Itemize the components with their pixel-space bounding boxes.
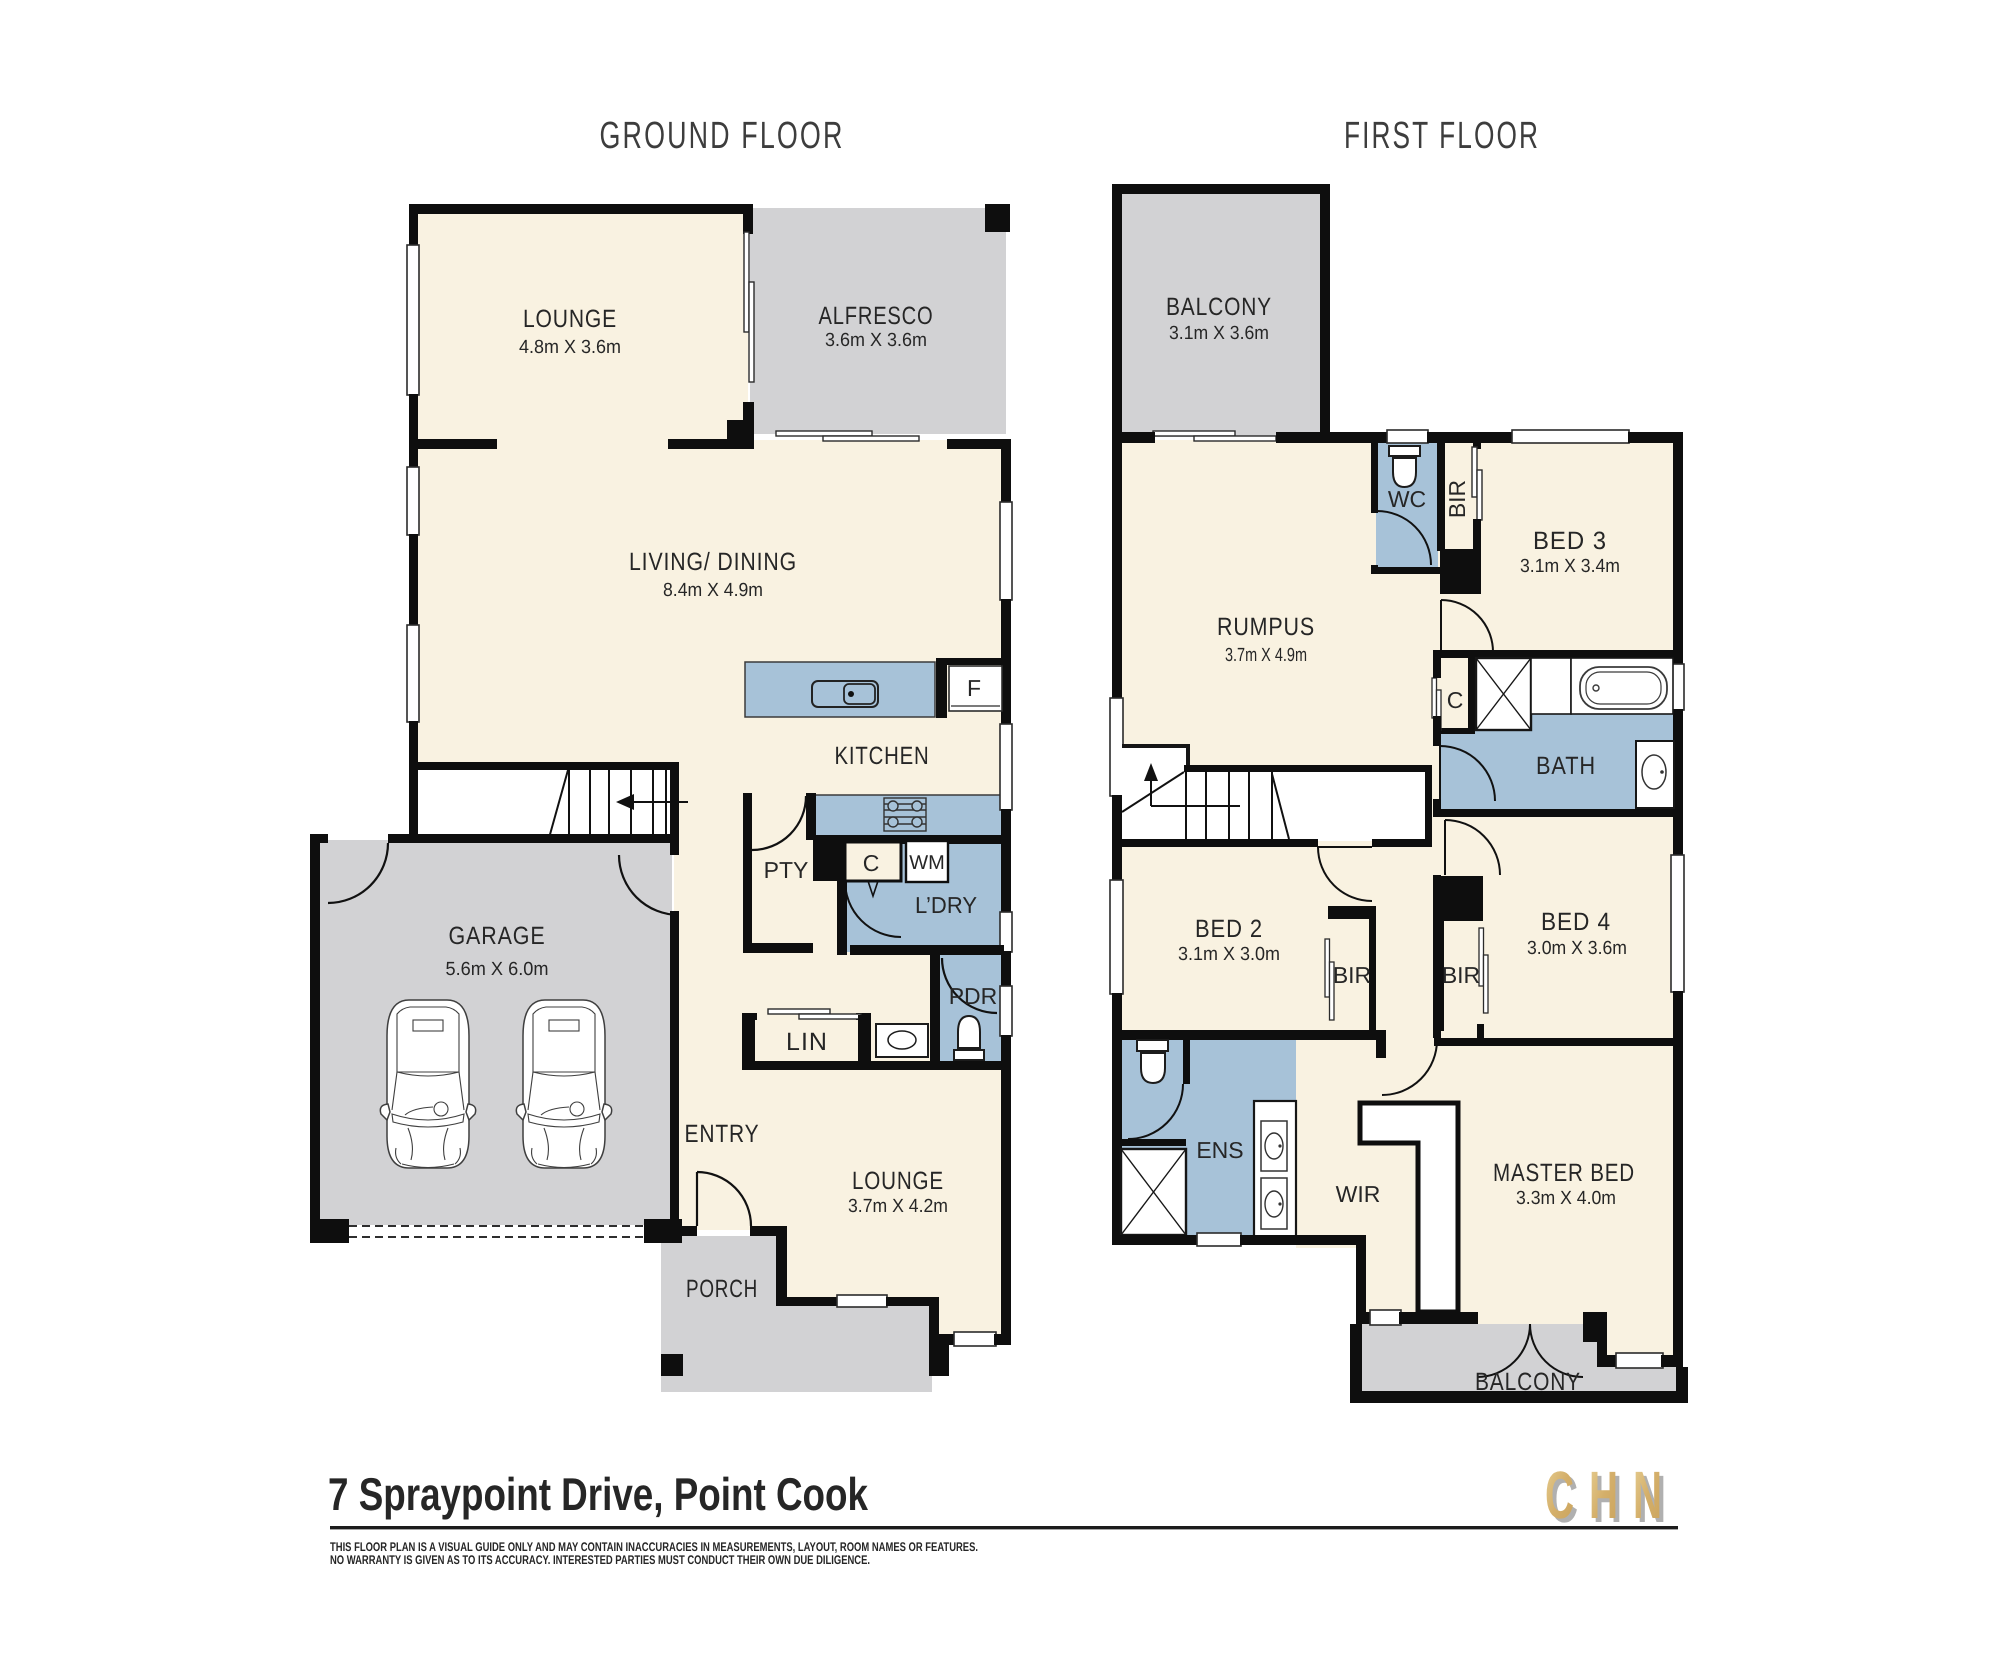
svg-text:3.7m X 4.2m: 3.7m X 4.2m xyxy=(848,1196,948,1217)
svg-text:ALFRESCO: ALFRESCO xyxy=(819,302,934,330)
svg-text:C: C xyxy=(1545,1458,1574,1533)
svg-text:LIN: LIN xyxy=(786,1028,828,1056)
svg-text:PORCH: PORCH xyxy=(686,1275,758,1303)
svg-text:WIR: WIR xyxy=(1336,1181,1381,1207)
svg-text:BALCONY: BALCONY xyxy=(1166,293,1272,321)
svg-text:4.8m X 3.6m: 4.8m X 3.6m xyxy=(519,337,621,358)
svg-text:ENS: ENS xyxy=(1196,1137,1243,1163)
svg-text:C: C xyxy=(863,850,880,876)
svg-text:BIR: BIR xyxy=(1333,962,1371,988)
svg-text:3.6m X 3.6m: 3.6m X 3.6m xyxy=(825,330,927,351)
svg-text:BIR: BIR xyxy=(1444,480,1470,518)
svg-text:3.1m X 3.6m: 3.1m X 3.6m xyxy=(1169,323,1269,344)
svg-text:LOUNGE: LOUNGE xyxy=(852,1167,944,1195)
svg-text:RUMPUS: RUMPUS xyxy=(1217,613,1315,641)
svg-text:3.0m X 3.6m: 3.0m X 3.6m xyxy=(1527,938,1627,959)
svg-text:MASTER BED: MASTER BED xyxy=(1493,1159,1635,1187)
svg-text:LOUNGE: LOUNGE xyxy=(523,305,617,333)
svg-text:BED 3: BED 3 xyxy=(1533,527,1607,555)
svg-text:5.6m X 6.0m: 5.6m X 6.0m xyxy=(446,959,549,980)
svg-text:8.4m X 4.9m: 8.4m X 4.9m xyxy=(663,580,763,601)
svg-text:3.1m X 3.0m: 3.1m X 3.0m xyxy=(1178,944,1280,965)
svg-text:NO WARRANTY IS GIVEN AS TO ITS: NO WARRANTY IS GIVEN AS TO ITS ACCURACY.… xyxy=(330,1553,870,1567)
svg-text:WC: WC xyxy=(1388,486,1426,512)
svg-text:BATH: BATH xyxy=(1536,752,1596,780)
svg-text:BIR: BIR xyxy=(1442,962,1480,988)
svg-text:THIS FLOOR PLAN IS A VISUAL GU: THIS FLOOR PLAN IS A VISUAL GUIDE ONLY A… xyxy=(330,1540,978,1554)
svg-text:H: H xyxy=(1589,1458,1618,1533)
svg-text:BED 2: BED 2 xyxy=(1195,915,1263,943)
svg-text:BALCONY: BALCONY xyxy=(1475,1368,1581,1396)
svg-text:F: F xyxy=(967,675,981,701)
svg-text:7 Spraypoint Drive, Point Cook: 7 Spraypoint Drive, Point Cook xyxy=(328,1468,868,1520)
svg-text:L’DRY: L’DRY xyxy=(915,892,977,918)
svg-text:C: C xyxy=(1447,687,1464,713)
svg-text:3.1m X 3.4m: 3.1m X 3.4m xyxy=(1520,556,1620,577)
svg-text:GARAGE: GARAGE xyxy=(449,922,546,950)
svg-text:BED 4: BED 4 xyxy=(1541,908,1611,936)
svg-text:WM: WM xyxy=(909,852,945,874)
svg-text:FIRST FLOOR: FIRST FLOOR xyxy=(1344,115,1540,157)
svg-text:ENTRY: ENTRY xyxy=(685,1120,760,1148)
svg-text:3.7m X 4.9m: 3.7m X 4.9m xyxy=(1225,645,1307,666)
svg-text:GROUND FLOOR: GROUND FLOOR xyxy=(600,115,845,157)
svg-text:3.3m X 4.0m: 3.3m X 4.0m xyxy=(1516,1188,1616,1209)
svg-text:PTY: PTY xyxy=(764,857,809,883)
svg-text:PDR: PDR xyxy=(949,983,998,1009)
svg-text:N: N xyxy=(1633,1458,1662,1533)
svg-text:KITCHEN: KITCHEN xyxy=(835,742,930,770)
svg-text:LIVING/ DINING: LIVING/ DINING xyxy=(629,548,797,576)
